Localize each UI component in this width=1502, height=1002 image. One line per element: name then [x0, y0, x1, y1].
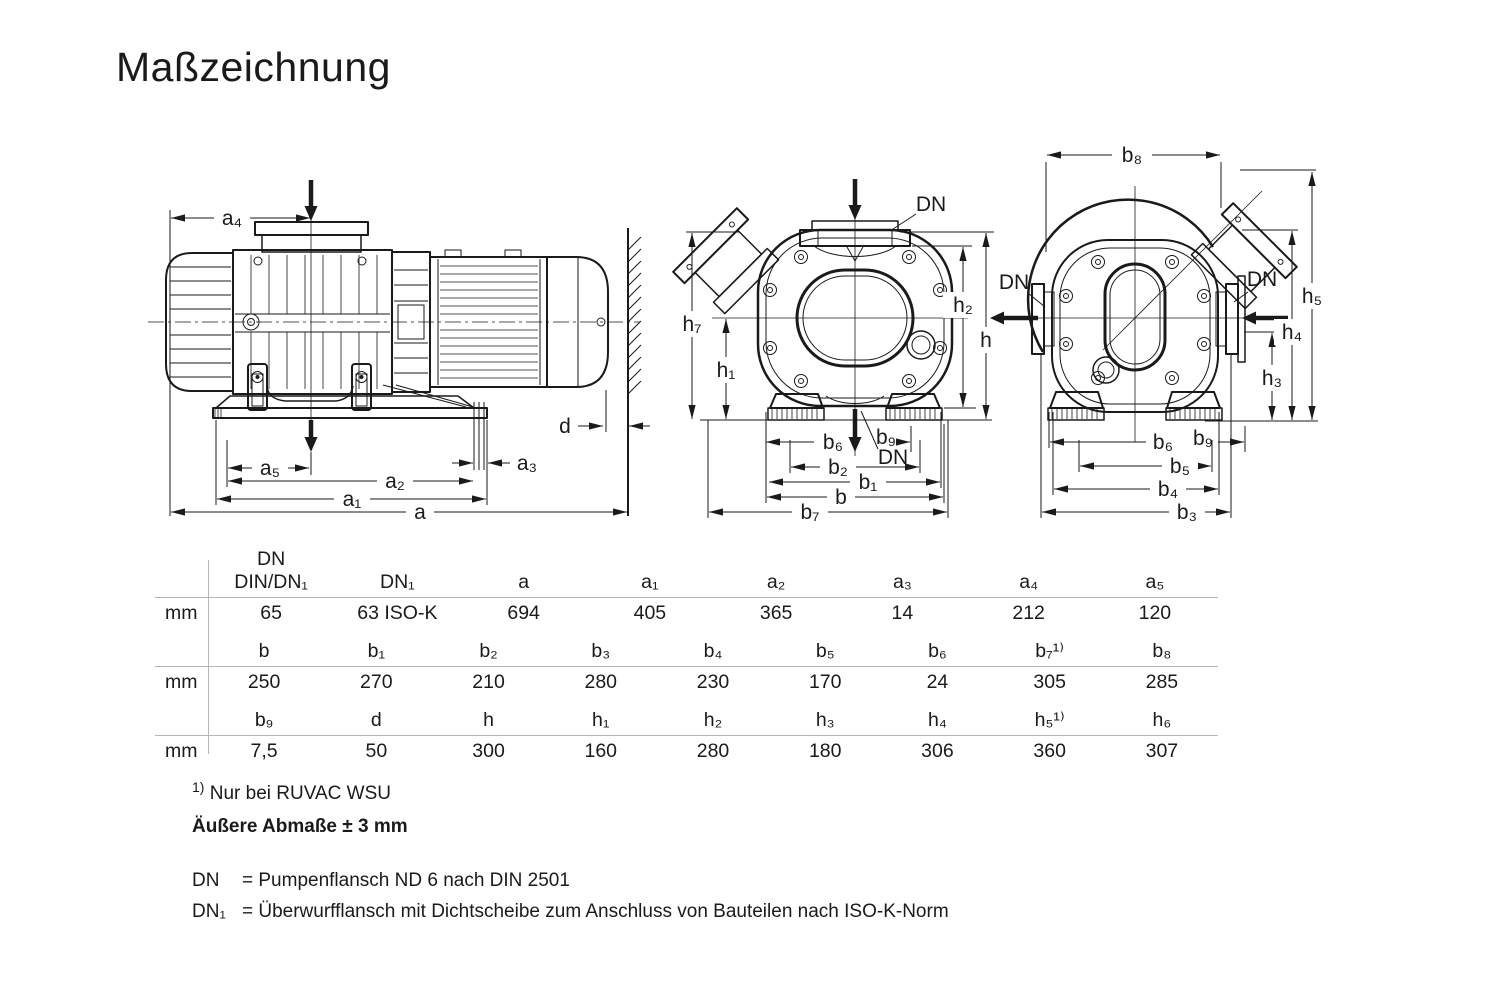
table-header-cell: b₅: [769, 640, 881, 663]
table-data-row-c: mm 7,5 50 300 160 280 180 306 360 307: [155, 736, 1218, 767]
dim-label-b4: b₄: [1158, 478, 1178, 501]
dim-label-h2: h₂: [953, 294, 973, 317]
unit-cell: mm: [155, 671, 208, 694]
table-data-row-a: mm 65 63 ISO-K 694 405 365 14 212 120: [155, 598, 1218, 629]
unit-cell: mm: [155, 740, 208, 763]
table-header-cell: a₁: [587, 571, 713, 594]
legend-row-dn1: DN₁ = Überwurfflansch mit Dichtscheibe z…: [192, 896, 949, 927]
table-header-cell: b₈: [1106, 640, 1218, 663]
table-header-cell: b: [208, 640, 320, 663]
dim-label-b3: b₃: [1177, 501, 1197, 524]
dim-label-b5: b₅: [1170, 455, 1190, 478]
angled-flange: [673, 208, 783, 318]
table-header-cell: b₉: [208, 709, 320, 732]
dim-label-b6: b₆: [1153, 431, 1173, 454]
dim-label-b7: b₇: [801, 501, 820, 524]
outlet-flow-arrow: [849, 409, 862, 452]
table-header-cell: h₄: [881, 709, 993, 732]
table-cell: 160: [545, 740, 657, 763]
dim-label-h3: h₃: [1262, 367, 1282, 390]
outlet-flow-arrow: [305, 420, 318, 452]
inlet-flow-arrow: [849, 179, 862, 220]
table-cell: 14: [839, 602, 965, 625]
table-header-cell: b₁: [320, 640, 432, 663]
table-cell: 280: [657, 740, 769, 763]
dim-label-dn-right: DN: [1247, 268, 1277, 291]
table-header-cell: b₆: [881, 640, 993, 663]
legend-definition: = Überwurfflansch mit Dichtscheibe zum A…: [242, 896, 949, 927]
table-header-cell: h₂: [657, 709, 769, 732]
table-header-cell: a₂: [713, 571, 839, 594]
dim-label-dn-top: DN: [916, 193, 946, 216]
table-header-cell: b₃: [545, 640, 657, 663]
table-cell: 694: [461, 602, 587, 625]
dim-label-d: d: [559, 415, 571, 438]
table-cell: 306: [881, 740, 993, 763]
table-header-cell: DN₁: [334, 571, 460, 594]
dim-label-dn-bottom: DN: [878, 446, 908, 469]
table-header-cell: a₄: [966, 571, 1092, 594]
table-cell: 120: [1092, 602, 1218, 625]
dim-label-a5: a₅: [260, 457, 280, 480]
dim-label-dn-left: DN: [999, 271, 1029, 294]
footnote-1: 1) Nur bei RUVAC WSU: [192, 779, 949, 805]
dim-label-h1: h₁: [717, 359, 736, 382]
rear-view-drawing: b₈ h₅ h₄ h₃ DN DN b₆ b₉ b₅ b₄ b₃: [990, 144, 1330, 524]
footnotes: 1) Nur bei RUVAC WSU Äußere Abmaße ± 3 m…: [192, 779, 949, 927]
inlet-flow-arrow: [305, 180, 318, 221]
table-cell: 24: [881, 671, 993, 694]
dim-label-a4: a₄: [222, 207, 242, 230]
table-cell: 285: [1106, 671, 1218, 694]
motor: [430, 250, 547, 387]
table-header-row-c: b₉ d h h₁ h₂ h₃ h₄ h₅¹⁾ h₆: [155, 698, 1218, 736]
table-data-row-b: mm 250 270 210 280 230 170 24 305 285: [155, 667, 1218, 698]
table-header-cell: h₅¹⁾: [994, 708, 1106, 732]
table-cell: 405: [587, 602, 713, 625]
footnote-marker: 1): [192, 779, 204, 795]
table-vertical-rule: [208, 560, 209, 754]
dim-label-b1: b₁: [859, 471, 878, 494]
dim-label-h4: h₄: [1282, 321, 1302, 344]
table-cell: 305: [994, 671, 1106, 694]
table-header-cell: h₁: [545, 709, 657, 732]
table-cell: 365: [713, 602, 839, 625]
foot-right: [1166, 392, 1222, 420]
dimension-drawing: a₄ a₅ a₂ a₁ a a₃ d: [0, 0, 1502, 560]
legend-definition: = Pumpenflansch ND 6 nach DIN 2501: [242, 865, 949, 896]
foot-left: [1048, 392, 1104, 420]
dim-label-h5: h₅: [1302, 285, 1322, 308]
table-header-cell: b₇¹⁾: [994, 639, 1106, 663]
datasheet-page: Maßzeichnung: [0, 0, 1502, 1002]
table-cell: 270: [320, 671, 432, 694]
table-header-row-b: b b₁ b₂ b₃ b₄ b₅ b₆ b₇¹⁾ b₈: [155, 629, 1218, 667]
table-cell: 63 ISO-K: [334, 602, 460, 625]
table-header-cell: b₄: [657, 640, 769, 663]
intake-flange: [255, 222, 368, 252]
table-cell: 360: [994, 740, 1106, 763]
pump-housing-rear: [1028, 200, 1218, 412]
dim-label-b9: b₉: [876, 426, 896, 449]
dim-label-b9: b₉: [1193, 427, 1213, 450]
table-cell: 307: [1106, 740, 1218, 763]
table-cell: 210: [432, 671, 544, 694]
table-cell: 170: [769, 671, 881, 694]
legend-term: DN: [192, 865, 242, 896]
table-cell: 280: [545, 671, 657, 694]
table-header-cell: DN DIN/DN₁: [208, 548, 334, 594]
unit-cell: mm: [155, 602, 208, 625]
dim-label-a1: a₁: [343, 488, 362, 511]
tolerance-note: Äußere Abmaße ± 3 mm: [192, 816, 949, 838]
dim-label-b6: b₆: [823, 431, 843, 454]
table-cell: 65: [208, 602, 334, 625]
dim-label-a2: a₂: [385, 470, 405, 493]
dimensions-table: DN DIN/DN₁ DN₁ a a₁ a₂ a₃ a₄ a₅ mm 65 63…: [155, 537, 1218, 767]
table-header-cell: a₃: [839, 571, 965, 594]
side-port-right: [1216, 276, 1245, 362]
front-view-drawing: h₇ h₁ h₂ h DN DN b₆ b₉ b₂ b₁ b b₇: [672, 179, 1002, 524]
dim-label-h: h: [980, 329, 992, 352]
table-cell: 50: [320, 740, 432, 763]
table-cell: 180: [769, 740, 881, 763]
mounting-foot: [352, 364, 371, 410]
side-view-drawing: a₄ a₅ a₂ a₁ a a₃ d: [148, 180, 650, 524]
table-header-cell: a: [461, 571, 587, 594]
wall-hatching: [628, 228, 641, 516]
legend-term: DN₁: [192, 896, 242, 927]
table-header-cell: a₅: [1092, 571, 1218, 594]
dim-label-h7: h₇: [683, 313, 702, 336]
table-cell: 7,5: [208, 740, 320, 763]
legend-row-dn: DN = Pumpenflansch ND 6 nach DIN 2501: [192, 865, 949, 896]
table-header-cell: d: [320, 709, 432, 732]
legend: DN = Pumpenflansch ND 6 nach DIN 2501 DN…: [192, 865, 949, 927]
dim-label-b: b: [835, 486, 847, 509]
table-header-cell: h₆: [1106, 709, 1218, 732]
table-header-cell: h: [432, 709, 544, 732]
table-cell: 230: [657, 671, 769, 694]
table-cell: 300: [432, 740, 544, 763]
table-header-row-a: DN DIN/DN₁ DN₁ a a₁ a₂ a₃ a₄ a₅: [155, 537, 1218, 598]
dim-label-b2: b₂: [828, 456, 848, 479]
dim-label-a3: a₃: [517, 452, 537, 475]
table-header-cell: h₃: [769, 709, 881, 732]
table-header-cell: b₂: [432, 640, 544, 663]
table-cell: 250: [208, 671, 320, 694]
dim-label-a: a: [414, 501, 426, 524]
dim-label-b8: b₈: [1122, 144, 1142, 167]
table-cell: 212: [966, 602, 1092, 625]
